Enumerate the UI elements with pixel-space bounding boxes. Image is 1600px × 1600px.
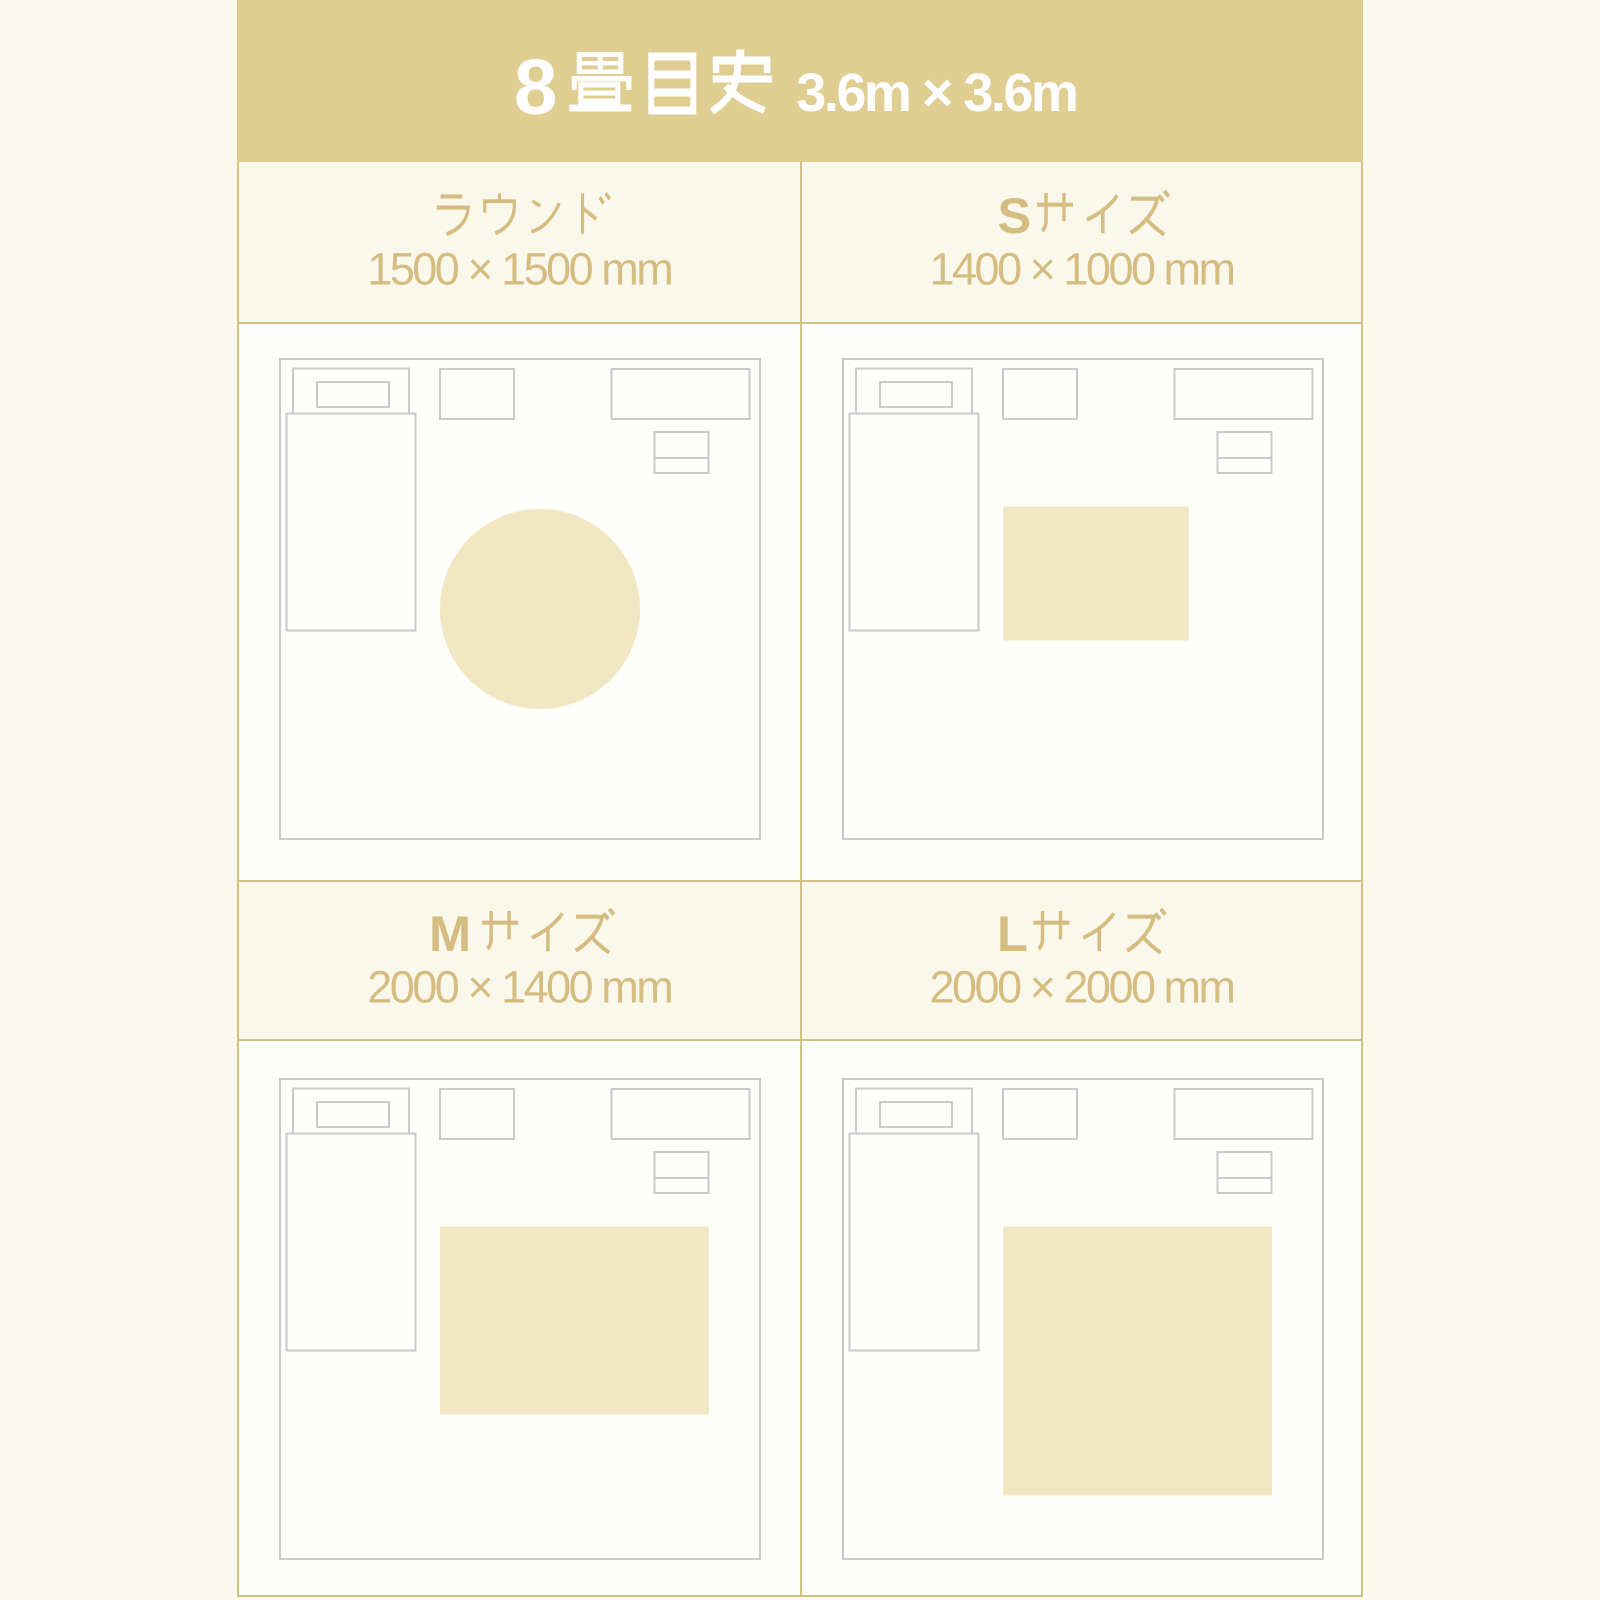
svg-text:1400 × 1000 mm: 1400 × 1000 mm <box>930 244 1234 295</box>
svg-text:2000 × 1400 mm: 2000 × 1400 mm <box>367 962 671 1013</box>
svg-text:1500 × 1500 mm: 1500 × 1500 mm <box>367 244 671 295</box>
svg-text:L: L <box>997 905 1028 962</box>
svg-text:M: M <box>429 905 471 962</box>
svg-text:S: S <box>998 187 1032 244</box>
svg-text:2000 × 2000 mm: 2000 × 2000 mm <box>930 962 1234 1013</box>
